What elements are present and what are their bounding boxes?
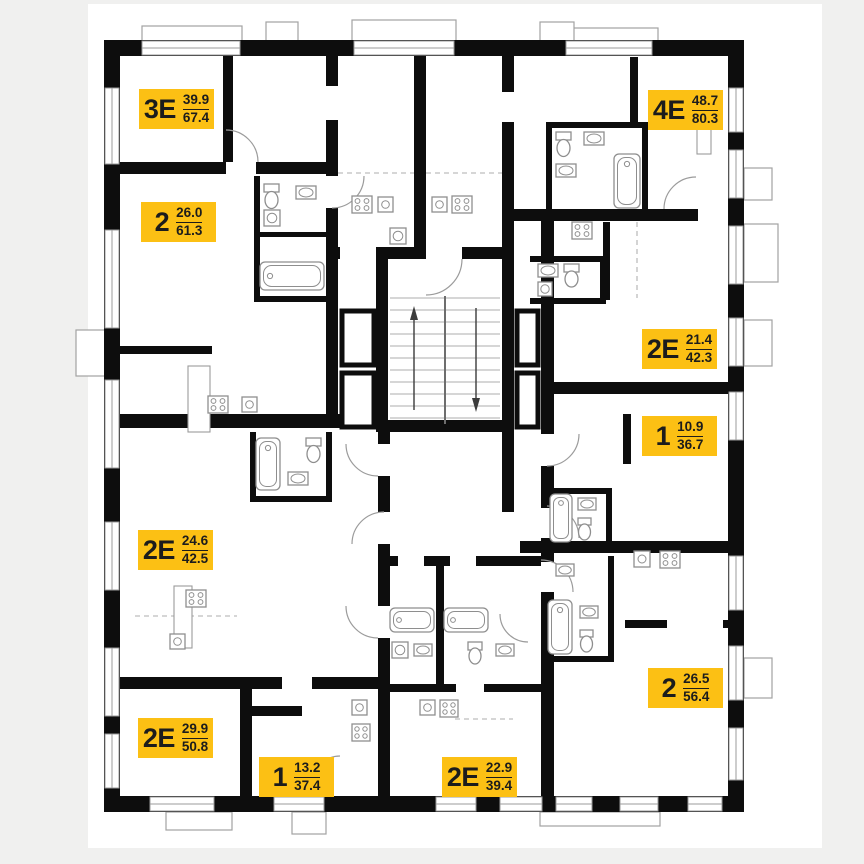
sink-icon <box>556 164 576 177</box>
sink-icon <box>296 186 316 199</box>
apartment-label-2: 2 26.0 61.3 <box>141 202 216 242</box>
washer-icon <box>538 282 552 296</box>
washer-icon <box>264 210 280 226</box>
bathtub-icon <box>548 600 572 654</box>
apartment-areas: 48.7 80.3 <box>692 94 718 127</box>
floor-plan: 3Е 39.9 67.4 2 26.0 61.3 4Е 48.7 80.3 2Е… <box>0 0 864 864</box>
area-living: 21.4 <box>686 333 712 350</box>
stove-icon <box>352 196 372 213</box>
stove-icon <box>352 724 370 741</box>
kitchen-sink-icon <box>170 634 185 649</box>
area-living: 22.9 <box>486 761 512 778</box>
kitchen-sink-icon <box>352 700 367 715</box>
apartment-areas: 26.5 56.4 <box>683 672 709 705</box>
bathtub-icon <box>614 154 640 208</box>
kitchen-sink-icon <box>420 700 435 715</box>
sink-icon <box>414 644 432 656</box>
area-total: 39.4 <box>486 779 512 794</box>
sink-icon <box>496 644 514 656</box>
sink-icon <box>584 132 604 145</box>
kitchen-sink-icon <box>432 197 447 212</box>
toilet-icon <box>264 184 279 209</box>
apartment-areas: 10.9 36.7 <box>677 420 703 453</box>
apartment-areas: 21.4 42.3 <box>686 333 712 366</box>
kitchen-sink-icon <box>242 397 257 412</box>
apartment-label-2e: 2Е 29.9 50.8 <box>138 718 213 758</box>
apartment-type: 2 <box>155 209 170 236</box>
area-living: 29.9 <box>182 722 208 739</box>
floor-plan-drawing <box>0 0 864 864</box>
area-total: 80.3 <box>692 112 718 127</box>
elevator-shaft <box>342 373 374 427</box>
area-total: 67.4 <box>183 111 209 126</box>
stove-icon <box>440 700 458 717</box>
apartment-areas: 24.6 42.5 <box>182 534 208 567</box>
stove-icon <box>186 590 206 607</box>
toilet-icon <box>580 630 593 652</box>
apartment-type: 2Е <box>143 537 175 564</box>
apartment-areas: 13.2 37.4 <box>294 761 320 794</box>
sink-icon <box>288 472 308 485</box>
stove-icon <box>572 222 592 239</box>
elevator-shaft <box>517 311 538 365</box>
bathtub-icon <box>390 608 434 632</box>
area-total: 42.3 <box>686 351 712 366</box>
apartment-type: 2Е <box>647 336 679 363</box>
apartment-areas: 22.9 39.4 <box>486 761 512 794</box>
apartment-label-2: 2 26.5 56.4 <box>648 668 723 708</box>
area-living: 48.7 <box>692 94 718 111</box>
apartment-type: 2Е <box>143 725 175 752</box>
apartment-type: 1 <box>656 423 671 450</box>
elevator-shaft <box>517 373 538 427</box>
stove-icon <box>208 396 228 413</box>
apartment-type: 3Е <box>144 96 176 123</box>
sink-icon <box>578 498 596 510</box>
apartment-label-4e: 4Е 48.7 80.3 <box>648 90 723 130</box>
area-total: 56.4 <box>683 690 709 705</box>
toilet-icon <box>578 518 591 540</box>
toilet-icon <box>468 642 482 664</box>
kitchen-sink-icon <box>634 551 650 567</box>
area-total: 37.4 <box>294 779 320 794</box>
sink-icon <box>538 264 558 277</box>
washer-icon <box>392 642 408 658</box>
area-total: 36.7 <box>677 438 703 453</box>
apartment-areas: 29.9 50.8 <box>182 722 208 755</box>
stove-icon <box>660 551 680 568</box>
kitchen-sink-icon <box>378 197 393 212</box>
apartment-label-1: 1 10.9 36.7 <box>642 416 717 456</box>
toilet-icon <box>564 264 579 287</box>
area-living: 39.9 <box>183 93 209 110</box>
area-living: 13.2 <box>294 761 320 778</box>
area-living: 26.5 <box>683 672 709 689</box>
apartment-type: 2Е <box>447 764 479 791</box>
apartment-areas: 39.9 67.4 <box>183 93 209 126</box>
apartment-label-2e: 2Е 24.6 42.5 <box>138 530 213 570</box>
sink-icon <box>580 606 598 618</box>
apartment-label-1: 1 13.2 37.4 <box>259 757 334 797</box>
area-total: 50.8 <box>182 740 208 755</box>
sink-icon <box>556 564 574 576</box>
area-living: 10.9 <box>677 420 703 437</box>
area-living: 26.0 <box>176 206 202 223</box>
bathtub-icon <box>260 262 324 290</box>
area-total: 61.3 <box>176 224 202 239</box>
apartment-areas: 26.0 61.3 <box>176 206 202 239</box>
apartment-label-3e: 3Е 39.9 67.4 <box>139 89 214 129</box>
washer-icon <box>390 228 406 244</box>
bathtub-icon <box>550 494 572 542</box>
bathtub-icon <box>256 438 280 490</box>
bathtub-icon <box>444 608 488 632</box>
area-total: 42.5 <box>182 552 208 567</box>
toilet-icon <box>306 438 321 463</box>
apartment-type: 1 <box>273 764 288 791</box>
apartment-label-2e: 2Е 22.9 39.4 <box>442 757 517 797</box>
elevator-shaft <box>342 311 374 365</box>
toilet-icon <box>556 132 571 157</box>
apartment-type: 2 <box>662 675 677 702</box>
area-living: 24.6 <box>182 534 208 551</box>
stove-icon <box>452 196 472 213</box>
apartment-label-2e: 2Е 21.4 42.3 <box>642 329 717 369</box>
apartment-type: 4Е <box>653 97 685 124</box>
